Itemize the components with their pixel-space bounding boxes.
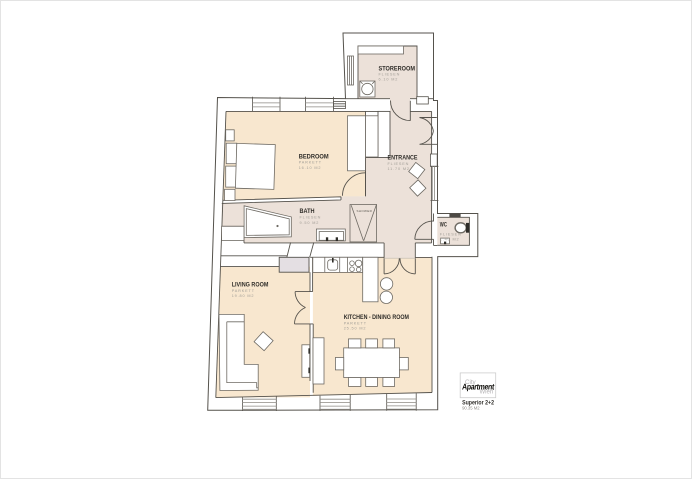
svg-text:25.50 M2: 25.50 M2: [344, 327, 367, 331]
svg-text:1.40 M2: 1.40 M2: [440, 238, 460, 242]
svg-text:SHOWER: SHOWER: [357, 209, 373, 213]
svg-text:WC: WC: [440, 221, 447, 228]
svg-text:PARKETT: PARKETT: [299, 161, 322, 165]
svg-text:PARKETT: PARKETT: [232, 289, 255, 293]
svg-text:Wien: Wien: [480, 390, 494, 396]
svg-text:16.10 M2: 16.10 M2: [299, 166, 322, 170]
svg-text:KITCHEN - DINING ROOM: KITCHEN - DINING ROOM: [344, 314, 409, 321]
svg-text:BEDROOM: BEDROOM: [299, 154, 329, 161]
svg-text:FLIESEN: FLIESEN: [388, 162, 410, 166]
svg-text:FLIESEN: FLIESEN: [440, 233, 462, 237]
svg-text:LIVING ROOM: LIVING ROOM: [232, 282, 269, 289]
svg-text:PARKETT: PARKETT: [344, 322, 367, 326]
svg-text:9.50 M2: 9.50 M2: [300, 221, 320, 225]
svg-text:90.35 M2: 90.35 M2: [462, 406, 480, 411]
svg-text:6.10 M2: 6.10 M2: [379, 78, 399, 82]
svg-text:11.70 M2: 11.70 M2: [388, 167, 410, 171]
svg-text:FLIESEN: FLIESEN: [300, 216, 322, 220]
svg-text:19.80 M2: 19.80 M2: [232, 294, 255, 298]
svg-text:FLIESEN: FLIESEN: [379, 73, 401, 77]
svg-text:BATH: BATH: [300, 208, 315, 215]
svg-text:ENTRANCE: ENTRANCE: [388, 155, 418, 162]
